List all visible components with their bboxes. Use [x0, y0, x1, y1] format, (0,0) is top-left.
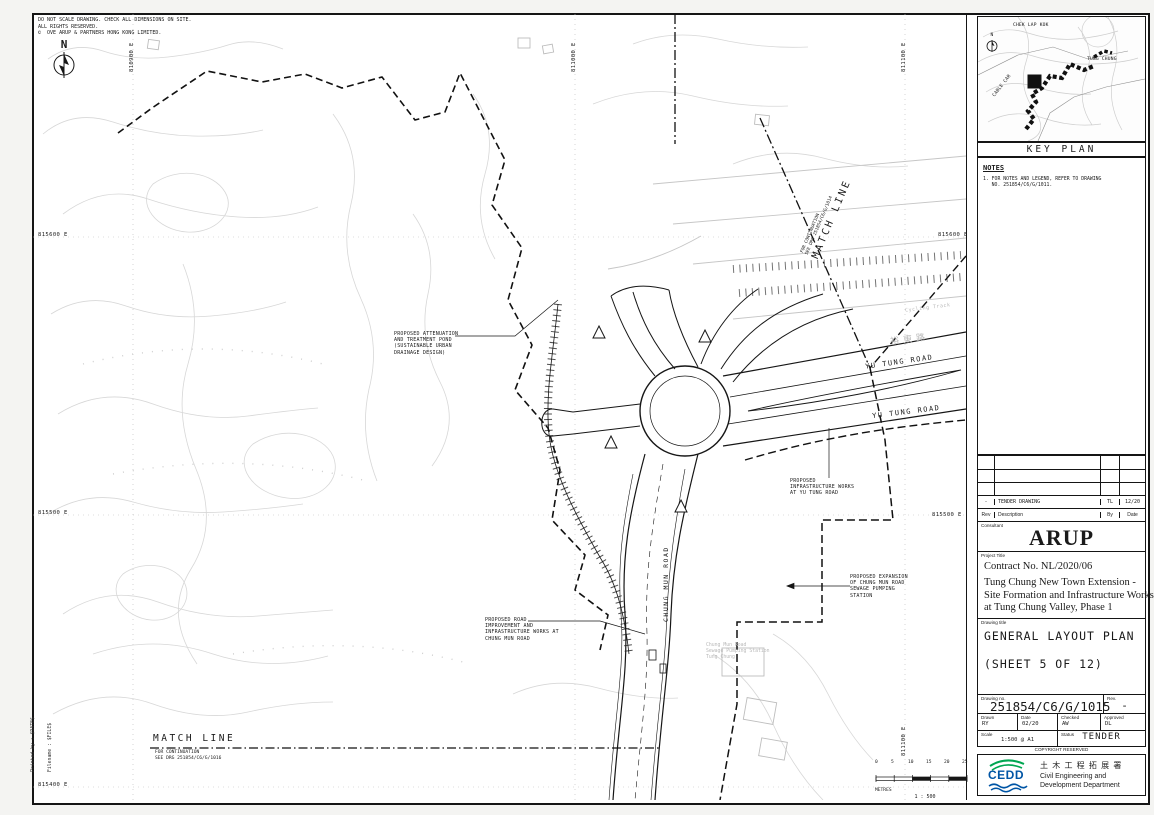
cedd-dept-english: Civil Engineering and Development Depart… — [1040, 773, 1122, 790]
grid-label-left-815500: 815500 E — [38, 510, 68, 516]
revision-empty-row — [978, 456, 1145, 469]
map-panel-divider — [966, 14, 967, 800]
grid-label-bottom-811100: 811100 E — [901, 726, 907, 756]
project-title-box: Project Title Contract No. NL/2020/06 Tu… — [977, 551, 1146, 619]
match-line-bottom-note: FOR CONTINUATION SEE DRG 251854/C6/G/101… — [155, 750, 221, 761]
road-label-chung-mun: CHUNG MUN ROAD — [662, 546, 670, 622]
grid-label-top-811100: 811100 E — [901, 42, 907, 72]
revision-header-date: Date — [1120, 512, 1145, 518]
project-title-label: Project Title — [981, 553, 1145, 558]
keyplan-north-arrow: N — [986, 33, 998, 57]
notes-item-1: 1. FOR NOTES AND LEGEND, REFER TO DRAWIN… — [983, 177, 1145, 189]
scale-tick-10: 10 — [908, 760, 914, 765]
scale-tick-20: 20 — [944, 760, 950, 765]
date-label: Date — [1021, 715, 1057, 720]
revision-header-by: By — [1101, 512, 1120, 518]
drawing-sheet-text: (SHEET 5 OF 12) — [984, 657, 1145, 671]
revision-empty-row — [978, 469, 1145, 482]
north-arrow: N — [50, 38, 78, 85]
keyplan-label-tung-chung: TUNG CHUNG — [1087, 57, 1117, 62]
consultant-name: ARUP — [978, 525, 1145, 551]
match-line-bottom-title: MATCH LINE — [153, 733, 235, 744]
cedd-logo-icon: CEDD — [984, 756, 1032, 794]
project-title-text: Tung Chung New Town Extension - Site For… — [984, 577, 1145, 615]
drawing-no-value: 251854/C6/G/1015 — [990, 699, 1103, 714]
cedd-box: CEDD 土 木 工 程 拓 展 署 Civil Engineering and… — [977, 754, 1146, 796]
north-label: N — [50, 38, 78, 51]
contour-lines — [43, 35, 908, 800]
scale-bar: 0 5 10 15 20 25 METRES 1 : 500 — [875, 760, 975, 800]
disclaimer-note: DO NOT SCALE DRAWING. CHECK ALL DIMENSIO… — [38, 17, 192, 37]
scale-value: 1:500 @ A1 — [978, 737, 1057, 743]
scale-bar-graphic — [875, 775, 971, 783]
drawing-sheet-page: { "sheet": { "printed_by": "Printed by :… — [0, 0, 1154, 815]
revision-table: - TENDER DRAWING TL 12/20 Rev Descriptio… — [977, 455, 1146, 522]
approved-value: DL — [1105, 721, 1145, 727]
revision-rev: - — [978, 499, 995, 505]
grid-label-right-815600: 815600 E — [938, 232, 968, 238]
drawn-value: RY — [982, 721, 1017, 727]
revision-header-description: Description — [995, 512, 1101, 518]
key-plan-title: KEY PLAN — [1027, 144, 1097, 155]
annotation-yu-tung-works: PROPOSED INFRASTRUCTURE WORKS AT YU TUNG… — [790, 478, 854, 497]
drawing-title-label: Drawing title — [981, 620, 1145, 625]
revision-header-row: Rev Description By Date — [978, 508, 1145, 521]
scale-tick-25: 25 — [962, 760, 968, 765]
scale-tick-0: 0 — [875, 760, 878, 765]
grid-label-right-815500: 815500 E — [932, 512, 962, 518]
key-plan-box: CHEK LAP KOK TUNG CHUNG CABLE CAR N — [977, 16, 1146, 142]
notes-heading: NOTES — [983, 164, 1145, 172]
grid-label-left-815600: 815600 E — [38, 232, 68, 238]
revision-empty-row — [978, 482, 1145, 495]
scale-unit: METRES — [875, 788, 975, 793]
annotation-pumping-station: PROPOSED EXPANSION OF CHUNG MUN ROAD SEW… — [850, 574, 908, 599]
date-value: 02/20 — [1022, 721, 1057, 727]
drawn-label: Drawn — [981, 715, 1017, 720]
cedd-dept-chinese: 土 木 工 程 拓 展 署 — [1040, 760, 1122, 771]
copyright-note: COPYRIGHT RESERVED — [977, 747, 1146, 752]
contract-no: Contract No. NL/2020/06 — [984, 561, 1145, 572]
consultant-box: Consultant ARUP — [977, 521, 1146, 552]
revision-description: TENDER DRAWING — [995, 499, 1101, 505]
yu-tung-road-lines — [723, 332, 966, 446]
notes-box: NOTES 1. FOR NOTES AND LEGEND, REFER TO … — [977, 157, 1146, 455]
annotation-attenuation-pond: PROPOSED ATTENUATION AND TREATMENT POND … — [394, 331, 458, 356]
leader-lines — [455, 300, 850, 634]
scale-tick-15: 15 — [926, 760, 932, 765]
revision-by: TL — [1101, 499, 1120, 505]
grid-label-left-815400: 815400 E — [38, 782, 68, 788]
drawing-title-text: GENERAL LAYOUT PLAN — [984, 629, 1145, 643]
revision-date: 12/20 — [1120, 499, 1145, 505]
grid-label-top-811000: 811000 E — [571, 42, 577, 72]
key-plan-title-bar: KEY PLAN — [977, 142, 1146, 157]
site-plan-canvas — [33, 14, 966, 800]
drawing-title-box: Drawing title GENERAL LAYOUT PLAN (SHEET… — [977, 618, 1146, 695]
scale-ratio: 1 : 500 — [875, 794, 975, 800]
compass-icon — [50, 51, 78, 81]
revision-entry-row: - TENDER DRAWING TL 12/20 — [978, 495, 1145, 508]
signature-row: Drawn RY Date 02/20 Checked AW Approved … — [977, 713, 1146, 731]
keyplan-label-chek-lap-kok: CHEK LAP KOK — [1013, 23, 1049, 28]
checked-label: Checked — [1061, 715, 1100, 720]
roundabout — [640, 366, 730, 456]
drawing-no-row: Drawing no. 251854/C6/G/1015 Rev. - — [977, 694, 1146, 714]
cedd-logo-text: CEDD — [988, 768, 1024, 782]
scale-status-row: Scale 1:500 @ A1 Status TENDER — [977, 730, 1146, 747]
revision-header-rev: Rev — [978, 512, 995, 518]
label-existing-pumping-station: Chung Mun Road Sewage Pumping Station Tu… — [706, 643, 770, 661]
approved-label: Approved — [1104, 715, 1145, 720]
checked-value: AW — [1062, 721, 1100, 727]
annotation-chung-mun-works: PROPOSED ROAD IMPROVEMENT AND INFRASTRUC… — [485, 617, 559, 642]
grid-label-top-810900: 810900 E — [129, 42, 135, 72]
scale-tick-5: 5 — [891, 760, 894, 765]
